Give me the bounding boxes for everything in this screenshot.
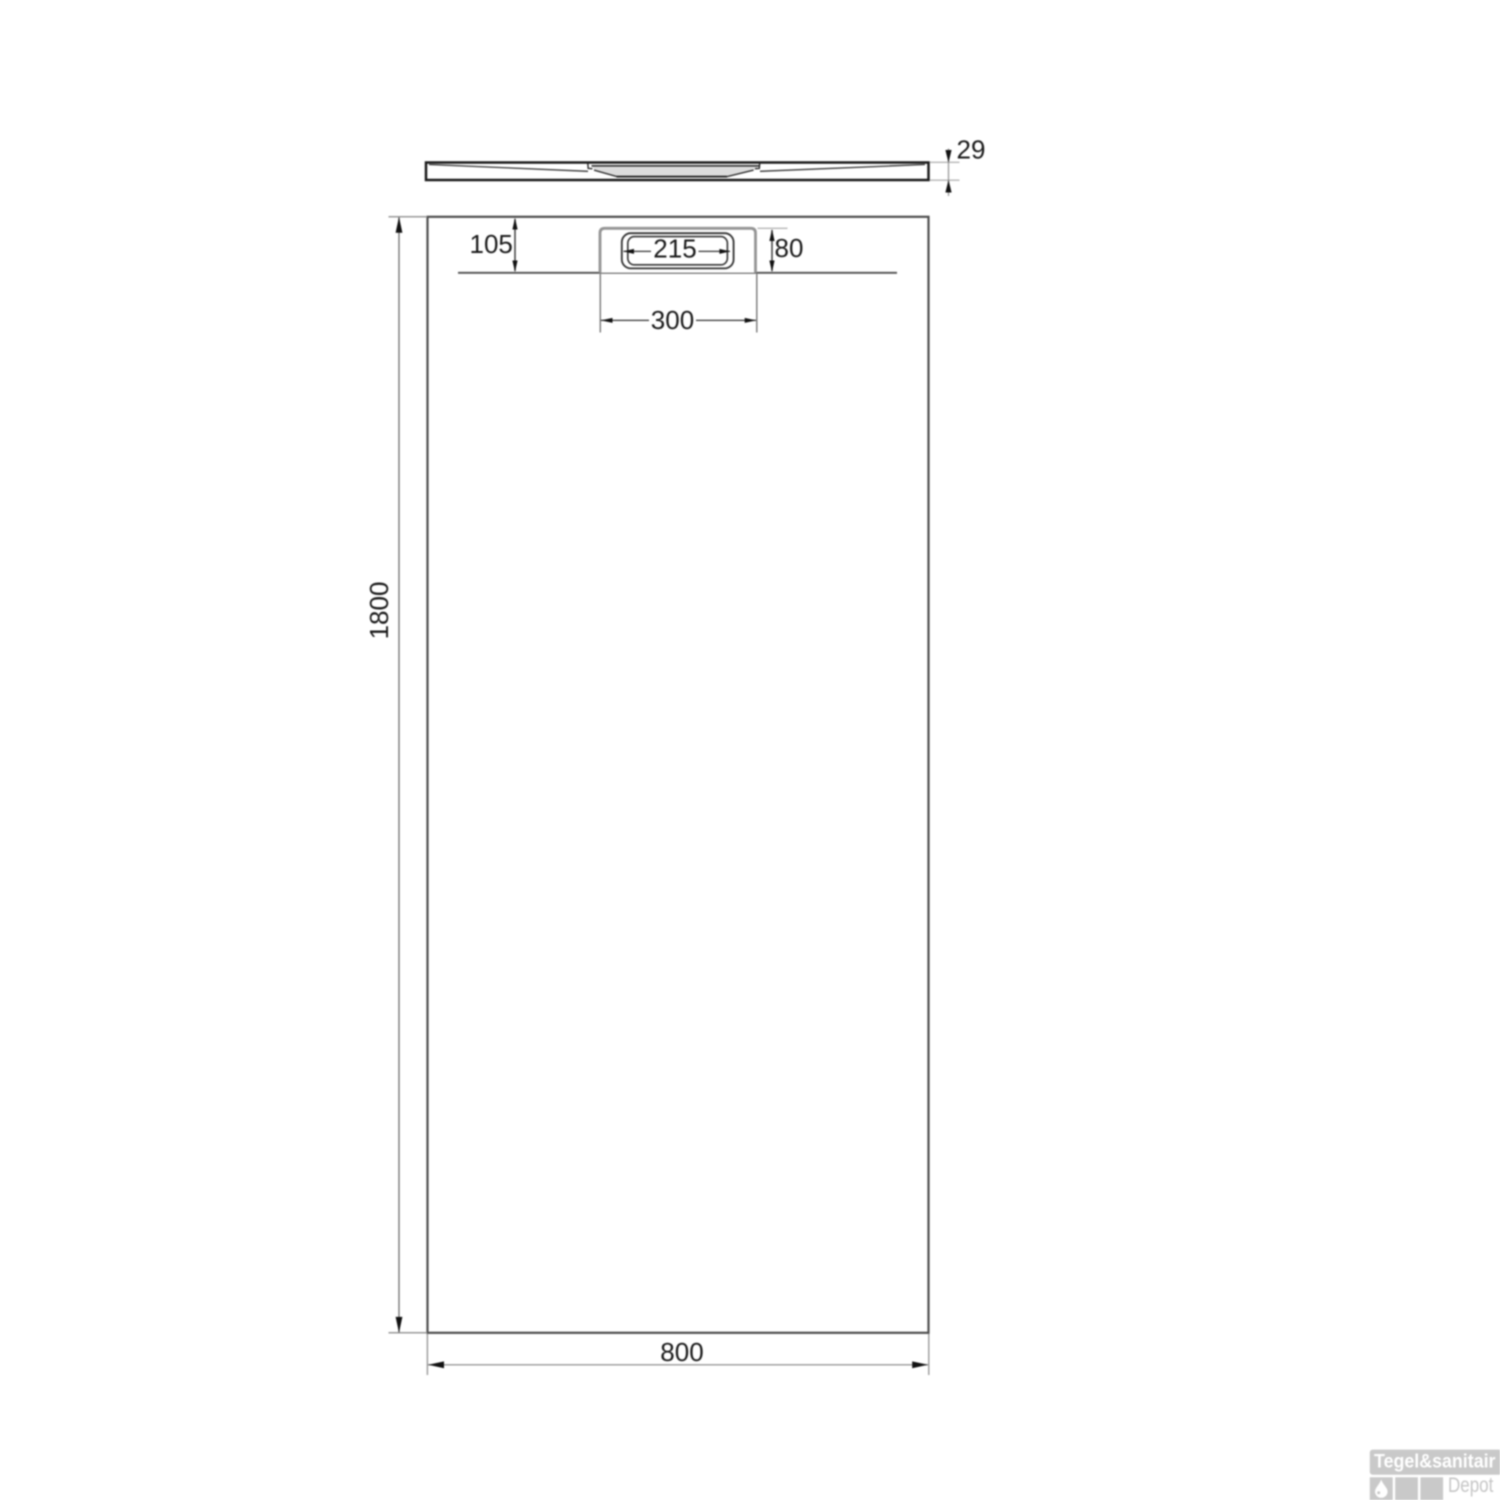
svg-text:80: 80 (775, 233, 804, 263)
svg-text:215: 215 (653, 233, 696, 263)
svg-text:800: 800 (660, 1337, 703, 1367)
svg-text:Depot: Depot (1448, 1473, 1493, 1497)
svg-text:Tegel&sanitair: Tegel&sanitair (1374, 1452, 1496, 1473)
svg-text:29: 29 (957, 135, 986, 165)
svg-text:300: 300 (651, 305, 694, 335)
svg-text:1800: 1800 (364, 582, 394, 640)
svg-text:105: 105 (470, 229, 513, 259)
